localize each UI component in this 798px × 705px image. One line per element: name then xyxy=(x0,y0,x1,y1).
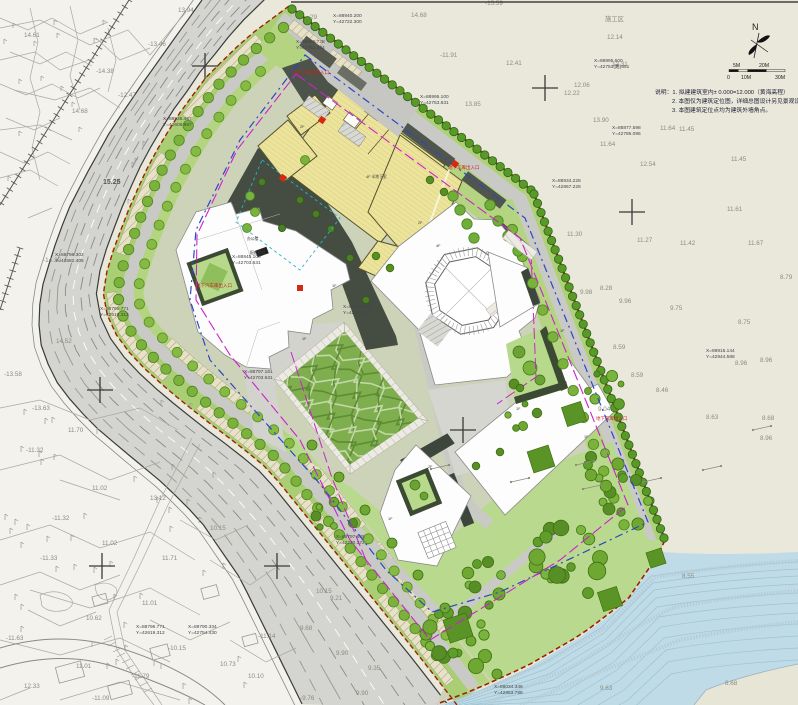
svg-text:2F: 2F xyxy=(428,465,433,469)
svg-text:13.94: 13.94 xyxy=(178,7,194,14)
svg-text:X=88797.645: X=88797.645 xyxy=(336,534,365,540)
svg-text:11.42: 11.42 xyxy=(680,240,696,247)
svg-text:9.63: 9.63 xyxy=(600,685,613,692)
svg-text:12.41: 12.41 xyxy=(506,60,522,67)
svg-text:9.68: 9.68 xyxy=(300,625,313,632)
svg-text:11.64: 11.64 xyxy=(660,125,676,132)
svg-text:30M: 30M xyxy=(775,75,785,81)
svg-text:X=88915.144: X=88915.144 xyxy=(706,348,735,354)
svg-text:9.35: 9.35 xyxy=(368,665,381,672)
svg-text:X=88940.200: X=88940.200 xyxy=(333,13,362,19)
svg-text:12.33: 12.33 xyxy=(24,683,40,690)
svg-text:2F: 2F xyxy=(418,221,423,225)
svg-text:-13.63: -13.63 xyxy=(32,405,50,412)
svg-text:29: 29 xyxy=(310,14,318,21)
svg-text:Y=42853.788: Y=42853.788 xyxy=(494,690,523,696)
svg-text:办公楼: 办公楼 xyxy=(247,236,259,241)
svg-text:12.06: 12.06 xyxy=(574,82,590,89)
svg-text:1F: 1F xyxy=(302,337,307,341)
svg-text:-15.59: -15.59 xyxy=(485,0,503,7)
svg-text:8.79: 8.79 xyxy=(780,274,793,281)
svg-text:8.59: 8.59 xyxy=(613,344,626,351)
svg-text:-11.63: -11.63 xyxy=(6,635,24,642)
svg-text:Y=42619.312: Y=42619.312 xyxy=(136,630,165,636)
svg-text:10.62: 10.62 xyxy=(86,615,102,622)
svg-text:11.02: 11.02 xyxy=(92,485,108,492)
svg-text:-11.32: -11.32 xyxy=(26,447,44,454)
svg-text:-11.79: -11.79 xyxy=(132,673,150,680)
svg-text:11.70: 11.70 xyxy=(68,427,84,434)
svg-text:4F: 4F xyxy=(436,244,441,248)
svg-text:-12.47: -12.47 xyxy=(118,92,136,99)
svg-text:X=88934.228: X=88934.228 xyxy=(552,178,581,184)
svg-text:Y=42582.406: Y=42582.406 xyxy=(55,258,84,264)
svg-text:-10.15: -10.15 xyxy=(168,645,186,652)
svg-text:X=88796.302: X=88796.302 xyxy=(55,252,84,258)
svg-text:8.55: 8.55 xyxy=(682,573,695,580)
svg-text:-11.09: -11.09 xyxy=(92,695,110,702)
svg-text:8.96: 8.96 xyxy=(760,357,773,364)
svg-text:Y=42703.631: Y=42703.631 xyxy=(244,375,273,381)
svg-text:14.68: 14.68 xyxy=(72,108,88,115)
svg-text:4F 半地下室: 4F 半地下室 xyxy=(366,174,387,179)
svg-text:14.52: 14.52 xyxy=(56,338,72,345)
svg-text:Y=42786.095: Y=42786.095 xyxy=(612,131,641,137)
svg-text:-11.14: -11.14 xyxy=(258,633,276,640)
svg-text:11.45: 11.45 xyxy=(731,156,747,163)
svg-text:-11.33: -11.33 xyxy=(40,555,58,562)
svg-text:11.71: 11.71 xyxy=(162,555,178,562)
svg-text:9.21: 9.21 xyxy=(330,595,343,602)
svg-text:Y=42752.534: Y=42752.534 xyxy=(296,45,325,51)
svg-text:-11.91: -11.91 xyxy=(440,52,458,59)
svg-text:X=88790.334: X=88790.334 xyxy=(188,624,217,630)
svg-text:8.68: 8.68 xyxy=(725,680,738,687)
svg-text:8.75: 8.75 xyxy=(738,319,751,326)
svg-text:-9.76: -9.76 xyxy=(300,695,315,702)
svg-text:-13.58: -13.58 xyxy=(4,371,22,378)
svg-text:1F: 1F xyxy=(584,435,589,439)
svg-text:地下车库出入口: 地下车库出入口 xyxy=(596,415,628,422)
svg-text:Y=42619.312: Y=42619.312 xyxy=(100,312,129,318)
svg-text:14.68: 14.68 xyxy=(411,12,427,19)
svg-text:Y=42703.631: Y=42703.631 xyxy=(232,260,261,266)
svg-text:2F: 2F xyxy=(300,125,305,129)
svg-text:X=88797.161: X=88797.161 xyxy=(244,369,273,375)
svg-text:1F: 1F xyxy=(332,284,337,288)
svg-text:2. 本图仅为建筑定位图，详细总图设计另见景观设计: 2. 本图仅为建筑定位图，详细总图设计另见景观设计 xyxy=(672,97,798,105)
svg-text:8.96: 8.96 xyxy=(760,435,773,442)
svg-text:12.54: 12.54 xyxy=(640,161,656,168)
svg-text:X=88936.467: X=88936.467 xyxy=(163,116,192,122)
svg-text:X=88796.771: X=88796.771 xyxy=(136,624,165,630)
svg-text:11.64: 11.64 xyxy=(600,141,616,148)
svg-text:13.12: 13.12 xyxy=(150,495,166,502)
svg-text:9.04: 9.04 xyxy=(598,406,611,413)
svg-text:X=88795.771: X=88795.771 xyxy=(100,306,129,312)
svg-text:X=88690.315: X=88690.315 xyxy=(343,304,372,310)
svg-text:9.90: 9.90 xyxy=(356,690,369,697)
svg-text:10.15: 10.15 xyxy=(210,525,226,532)
svg-text:10.15: 10.15 xyxy=(316,588,332,595)
svg-text:-13.46: -13.46 xyxy=(148,41,166,48)
svg-text:10M: 10M xyxy=(741,75,751,81)
svg-text:N: N xyxy=(752,22,759,32)
svg-text:8.68: 8.68 xyxy=(762,415,775,422)
svg-text:3. 本图建筑定位点均为建筑外墙角点。: 3. 本图建筑定位点均为建筑外墙角点。 xyxy=(672,106,771,114)
svg-text:1F: 1F xyxy=(388,517,393,521)
svg-text:11.02: 11.02 xyxy=(102,540,118,547)
svg-text:地下汽车库出入口: 地下汽车库出入口 xyxy=(293,69,329,76)
svg-text:20M: 20M xyxy=(759,63,769,69)
svg-text:配套用房: 配套用房 xyxy=(250,250,265,255)
svg-text:11.67: 11.67 xyxy=(748,240,764,247)
svg-text:12.22: 12.22 xyxy=(564,90,580,97)
svg-text:-11.32: -11.32 xyxy=(52,515,70,522)
svg-text:Y=42608.687: Y=42608.687 xyxy=(163,122,192,128)
svg-text:9.75: 9.75 xyxy=(670,305,683,312)
svg-text:Y=42753.631: Y=42753.631 xyxy=(420,100,449,106)
svg-text:11.01: 11.01 xyxy=(142,600,158,607)
svg-text:11.45: 11.45 xyxy=(679,126,695,133)
svg-text:X=88995.100: X=88995.100 xyxy=(420,94,449,100)
svg-text:8.63: 8.63 xyxy=(706,414,719,421)
svg-text:8.59: 8.59 xyxy=(631,372,644,379)
svg-text:1F: 1F xyxy=(560,329,565,333)
svg-text:地下车库出入口: 地下车库出入口 xyxy=(448,164,480,171)
svg-text:Y=42944.588: Y=42944.588 xyxy=(706,354,735,360)
svg-text:施工区: 施工区 xyxy=(605,14,624,23)
svg-text:9.96: 9.96 xyxy=(619,298,632,305)
svg-text:X=88996.728: X=88996.728 xyxy=(296,39,325,45)
svg-text:Y=42756.031: Y=42756.031 xyxy=(343,310,372,316)
svg-text:说明：1. 拟建建筑室内± 0.000=12.000（黄海高: 说明：1. 拟建建筑室内± 0.000=12.000（黄海高程） xyxy=(655,88,789,96)
svg-text:8.28: 8.28 xyxy=(600,285,613,292)
svg-text:Y=42770.172: Y=42770.172 xyxy=(336,540,365,546)
svg-text:8.96: 8.96 xyxy=(735,360,748,367)
svg-text:Y=42722.300: Y=42722.300 xyxy=(333,19,362,25)
svg-text:Y=42754.430: Y=42754.430 xyxy=(188,630,217,636)
svg-text:11.27: 11.27 xyxy=(637,237,653,244)
svg-text:X=88877.598: X=88877.598 xyxy=(612,125,641,131)
svg-text:10.73: 10.73 xyxy=(220,661,236,668)
svg-text:-14.38: -14.38 xyxy=(96,68,114,75)
svg-text:0: 0 xyxy=(727,75,730,81)
svg-text:Y=42867.228: Y=42867.228 xyxy=(552,184,581,190)
svg-text:X=88034.348: X=88034.348 xyxy=(494,684,523,690)
svg-text:13.90: 13.90 xyxy=(593,117,609,124)
svg-text:14.61: 14.61 xyxy=(24,32,40,39)
svg-text:13.85: 13.85 xyxy=(465,101,481,108)
svg-text:15.25: 15.25 xyxy=(103,179,121,186)
svg-text:5M: 5M xyxy=(733,63,740,69)
svg-text:11.61: 11.61 xyxy=(727,206,743,213)
svg-text:11.01: 11.01 xyxy=(76,663,92,670)
svg-text:9.90: 9.90 xyxy=(336,650,349,657)
svg-text:11.30: 11.30 xyxy=(567,231,583,238)
svg-text:地下汽车库出入口: 地下汽车库出入口 xyxy=(196,282,232,289)
svg-text:8.46: 8.46 xyxy=(656,387,669,394)
svg-text:1F: 1F xyxy=(516,407,521,411)
svg-text:Y=42753(路)651: Y=42753(路)651 xyxy=(594,63,630,70)
svg-text:12.14: 12.14 xyxy=(607,34,623,41)
svg-text:9.98: 9.98 xyxy=(580,289,593,296)
svg-text:10.10: 10.10 xyxy=(248,673,264,680)
svg-text:X=88995.600: X=88995.600 xyxy=(594,58,623,64)
